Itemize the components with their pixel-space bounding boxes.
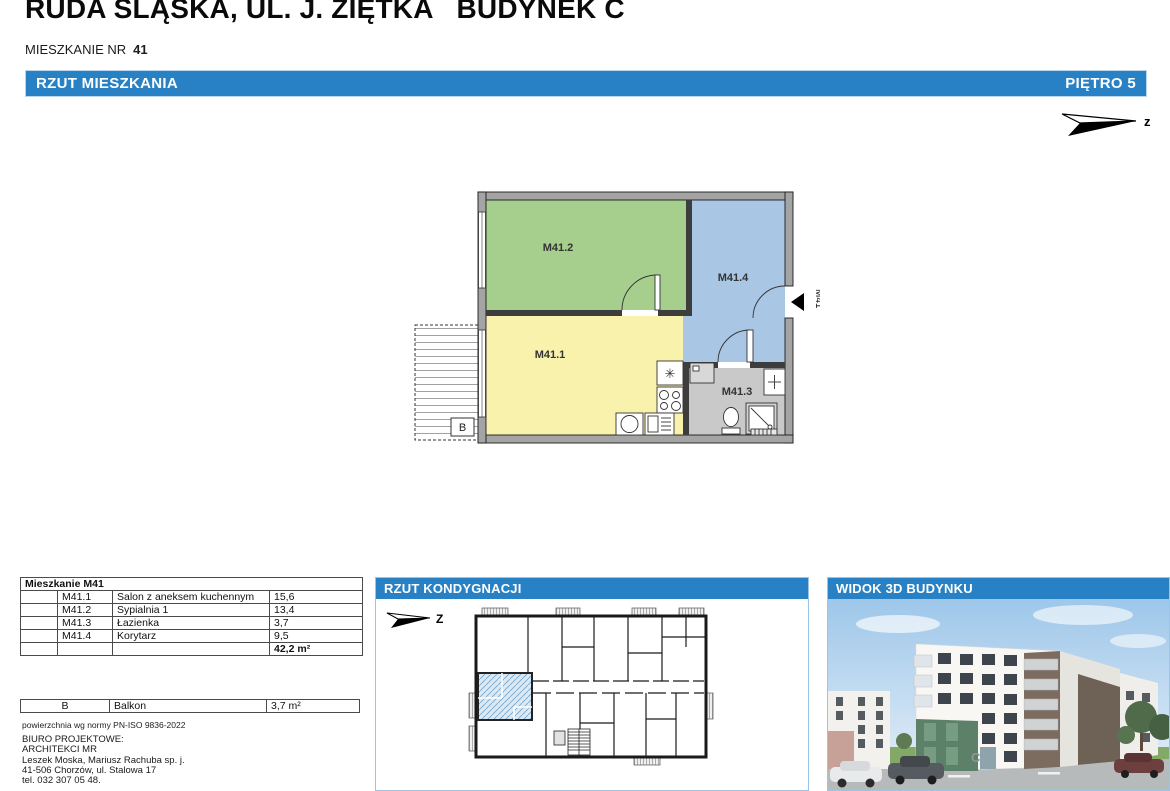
building-3d-render: C <box>828 599 1169 790</box>
area-table: Mieszkanie M41 M41.1 Salon z aneksem kuc… <box>20 577 363 656</box>
floor-plan-panel: RZUT KONDYGNACJI Z <box>375 577 809 791</box>
room-label-living: M41.1 <box>535 349 566 361</box>
entry-label: M41 <box>813 289 820 309</box>
table-total-row: 42,2 m² <box>21 643 363 656</box>
building-letter: C <box>971 750 981 765</box>
design-office-info: BIURO PROJEKTOWE: ARCHITEKCI MR Leszek M… <box>22 735 185 786</box>
north-arrow-label: z <box>1144 114 1151 129</box>
main-building: C <box>914 644 1120 771</box>
view3d-panel-header: WIDOK 3D BUDYNKU <box>828 578 1169 599</box>
table-row: M41.2 Sypialnia 1 13,4 <box>21 604 363 617</box>
apartment-plan-drawing: B M41 ✳ <box>400 185 820 455</box>
room-label-bedroom: M41.2 <box>543 242 574 254</box>
highlighted-apartment <box>478 673 532 720</box>
storey-plan-drawing <box>468 607 714 769</box>
north-arrow-icon: Z <box>384 605 448 633</box>
entry-arrow-icon <box>791 293 804 311</box>
north-arrow-icon: z <box>1058 104 1154 142</box>
table-row: M41.3 Łazienka 3,7 <box>21 617 363 630</box>
page-title: RUDA ŚLĄSKA, UL. J. ZIĘTKA BUDYNEK C <box>25 0 625 25</box>
table-row: B Balkon 3,7 m² <box>21 700 360 713</box>
room-label-bathroom: M41.3 <box>722 386 753 398</box>
norm-note: powierzchnia wg normy PN-ISO 9836-2022 <box>22 720 185 730</box>
apartment-label: MIESZKANIE NR <box>25 42 126 57</box>
room-label-corridor: M41.4 <box>718 272 749 284</box>
north-arrow-label: Z <box>436 612 443 626</box>
view3d-panel: WIDOK 3D BUDYNKU <box>827 577 1170 791</box>
background-building <box>828 691 890 769</box>
total-area: 42,2 m² <box>270 643 363 656</box>
balcony-label: B <box>459 422 466 434</box>
svg-text:✳: ✳ <box>665 366 676 381</box>
balcony-area: B <box>415 325 478 440</box>
section-bar-plan: RZUT MIESZKANIA PIĘTRO 5 <box>25 70 1147 97</box>
area-table-header: Mieszkanie M41 <box>21 578 363 591</box>
table-row: M41.1 Salon z aneksem kuchennym 15,6 <box>21 591 363 604</box>
floor-panel-header: RZUT KONDYGNACJI <box>376 578 808 599</box>
floor-badge: PIĘTRO 5 <box>1065 75 1136 92</box>
apartment-number: 41 <box>133 42 147 57</box>
balcony-table: B Balkon 3,7 m² <box>20 699 360 713</box>
section-bar-left-label: RZUT MIESZKANIA <box>36 75 178 92</box>
apartment-subtitle: MIESZKANIE NR41 <box>25 42 148 57</box>
table-row: M41.4 Korytarz 9,5 <box>21 630 363 643</box>
apartment-plan: B M41 ✳ <box>400 185 820 460</box>
